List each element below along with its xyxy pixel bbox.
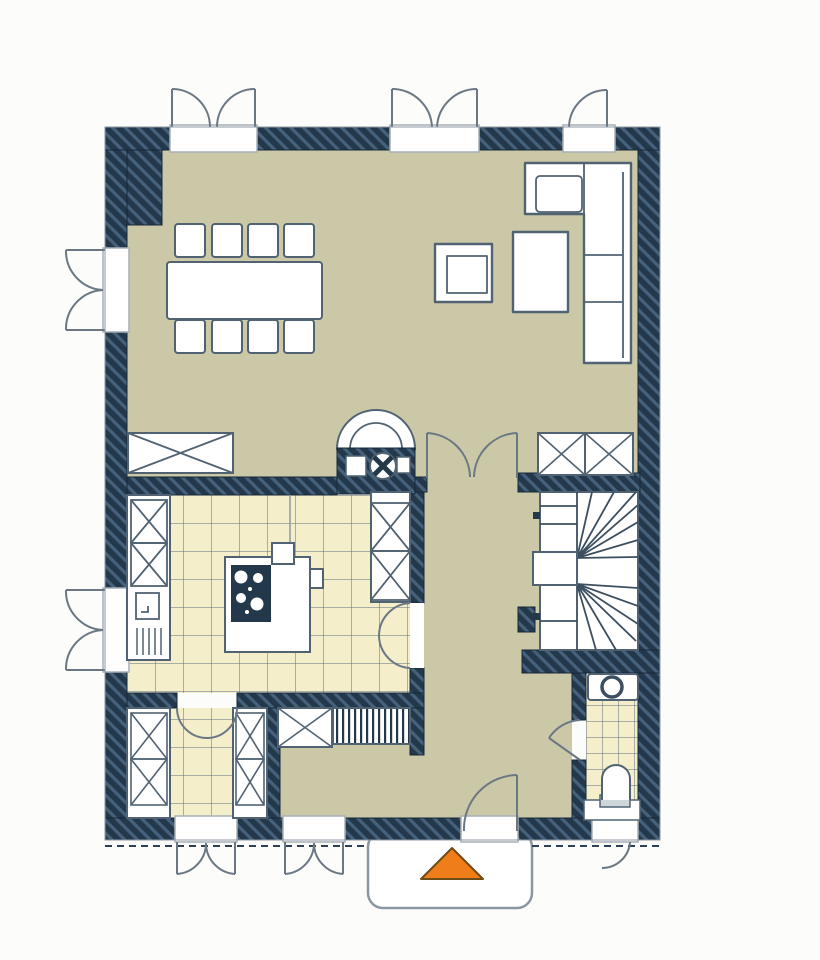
side-table: [513, 232, 568, 312]
wall-stair-west-stub: [518, 607, 535, 632]
wall-left-2: [105, 332, 127, 588]
wall-left-1: [105, 150, 127, 248]
wall-kitchen-east-upper: [410, 492, 424, 603]
stair-landing-notch: [533, 552, 577, 585]
staircase: [533, 492, 638, 650]
opening-top-door-1: [170, 125, 257, 152]
stair-marker-dot: [533, 613, 540, 620]
wall-top-2: [257, 127, 390, 150]
wall-top-4: [615, 127, 660, 150]
opening-left-door-1: [103, 248, 129, 332]
wall-kitchen-south-2: [237, 693, 424, 708]
wall-kitchen-south-1: [127, 693, 177, 708]
floor-plan-canvas: [0, 0, 820, 960]
dining-table: [167, 262, 322, 319]
opening-bottom-door-2: [283, 816, 345, 842]
stair-marker-dot: [533, 512, 540, 519]
island-sink-block: [272, 543, 294, 564]
wall-top-3: [479, 127, 563, 150]
hallway-floor-lower: [424, 650, 572, 818]
wall-wc-north: [522, 650, 660, 673]
wall-bottom-5: [638, 818, 660, 840]
opening-top-door-3: [563, 125, 615, 152]
dining-chair: [284, 320, 314, 353]
wall-bottom-4: [518, 818, 592, 840]
dining-chair: [175, 224, 205, 257]
double-door-top-west: [172, 89, 255, 127]
dining-chair: [284, 224, 314, 257]
dining-chair: [248, 224, 278, 257]
wall-kitchen-north-stub: [415, 477, 427, 492]
wall-bottom-3: [345, 818, 461, 840]
dining-chair: [212, 320, 242, 353]
pantry-cabinet-east: [233, 708, 267, 818]
washbasin-icon: [602, 677, 622, 697]
french-door-left-upper: [66, 250, 105, 330]
fireplace-panel-left: [346, 456, 366, 476]
pantry-cabinet-west: [127, 708, 170, 818]
wall-bottom-1: [105, 818, 175, 840]
storage-by-stair: [538, 433, 633, 475]
dining-chair: [175, 320, 205, 353]
wall-left-3: [105, 672, 127, 818]
opening-left-door-2: [103, 588, 129, 672]
opening-bottom-door-1: [175, 816, 237, 842]
wall-top-1: [105, 127, 170, 150]
opening-front-door: [461, 816, 518, 842]
wall-kitchen-east-lower: [410, 668, 424, 755]
sideboard-living: [128, 433, 233, 473]
single-door-top: [569, 90, 607, 127]
fireplace-panel-right: [397, 457, 410, 473]
entrance-porch: [368, 832, 532, 908]
kitchen-counter-east: [371, 492, 410, 602]
wall-right: [638, 150, 660, 818]
toilet-bowl-icon: [602, 765, 630, 800]
dining-chair: [248, 320, 278, 353]
sofa-cushion: [536, 176, 582, 212]
wall-chimney-block: [127, 150, 162, 225]
double-door-top-east: [392, 89, 477, 127]
wall-kitchen-north: [127, 477, 337, 495]
island-towel-bar: [310, 569, 323, 588]
hall-cabinet: [278, 708, 332, 747]
wall-bottom-2: [237, 818, 283, 840]
wall-wc-west-upper: [572, 673, 586, 720]
wardrobe-coat-rack: [333, 708, 410, 744]
dining-chair: [212, 224, 242, 257]
fireplace: [337, 410, 415, 494]
floor-plan-drawing: [0, 0, 820, 960]
french-door-left-lower: [66, 590, 105, 670]
opening-kitchen-door: [410, 603, 424, 668]
opening-top-door-2: [390, 125, 479, 152]
